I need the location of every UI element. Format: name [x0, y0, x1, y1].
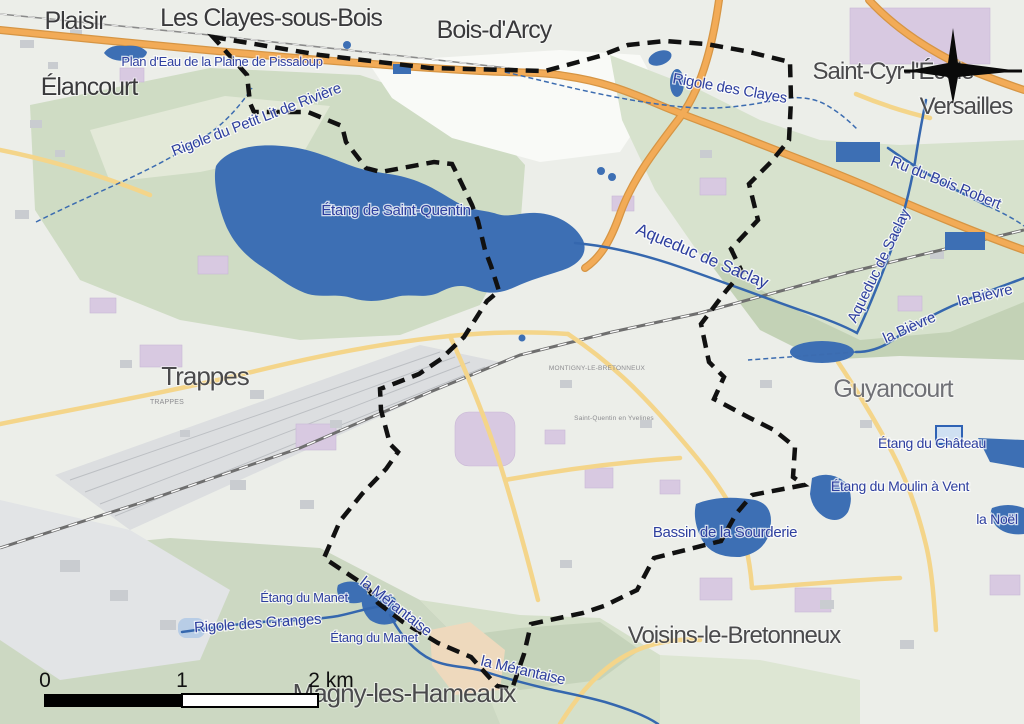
water-label-etang-du-moulin: Étang du Moulin à Vent: [831, 478, 970, 494]
scale-bar-black-segment: [44, 694, 182, 707]
city-label-guyancourt: Guyancourt: [833, 375, 953, 403]
scale-tick-2km: 2 km: [308, 669, 354, 692]
city-label-les-clayes: Les Clayes-sous-Bois: [160, 4, 382, 32]
water-label-bassin-sourderie: Bassin de la Sourderie: [653, 524, 797, 541]
minor-label-trappes-station: TRAPPES: [150, 399, 184, 406]
city-label-voisins: Voisins-le-Bretonneux: [628, 622, 841, 649]
water-label-la-noel: la Noël: [976, 511, 1018, 527]
minor-label-sqy: Saint-Quentin en Yvelines: [574, 415, 654, 422]
city-label-elancourt: Élancourt: [41, 72, 139, 101]
scale-bar-white-segment: [182, 694, 318, 707]
water-label-etang-du-manet-2: Étang du Manet: [330, 630, 418, 645]
map-canvas: Plaisir Les Clayes-sous-Bois Bois-d'Arcy…: [0, 0, 1024, 724]
scale-tick-0: 0: [39, 669, 51, 692]
water-label-etang-du-chateau: Étang du Château: [878, 435, 986, 451]
city-label-versailles: Versailles: [920, 93, 1014, 120]
water-label-etang-saint-quentin: Étang de Saint-Quentin: [321, 202, 470, 219]
city-label-plaisir: Plaisir: [44, 7, 106, 35]
water-label-pissaloup: Plan d'Eau de la Plaine de Pissaloup: [121, 54, 322, 69]
city-label-trappes: Trappes: [161, 361, 249, 391]
map-screenshot: Plaisir Les Clayes-sous-Bois Bois-d'Arcy…: [0, 0, 1024, 724]
water-label-etang-du-manet-1: Étang du Manet: [260, 590, 348, 605]
minor-label-montigny: MONTIGNY-LE-BRETONNEUX: [549, 365, 646, 372]
scale-tick-1: 1: [176, 669, 188, 692]
city-label-bois-darcy: Bois-d'Arcy: [437, 16, 553, 44]
